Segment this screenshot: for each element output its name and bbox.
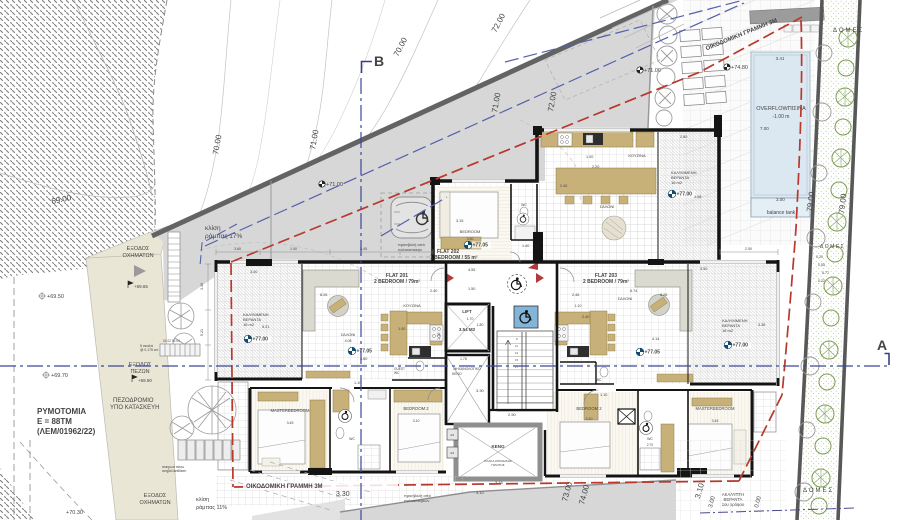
svg-text:LIFT: LIFT: [462, 309, 472, 314]
svg-text:5.21: 5.21: [200, 329, 204, 336]
svg-text:ΕΞΟΔΟΣ: ΕΞΟΔΟΣ: [127, 246, 150, 252]
svg-text:BEDROOM 2: BEDROOM 2: [403, 406, 429, 411]
svg-text:4/4: 4/4: [450, 451, 455, 455]
svg-text:3.40: 3.40: [200, 283, 204, 290]
svg-text:0.20: 0.20: [816, 255, 823, 259]
svg-text:+77.05: +77.05: [645, 350, 661, 356]
svg-text:1.00: 1.00: [586, 155, 593, 159]
svg-text:01 02 03 04: 01 02 03 04: [163, 339, 180, 343]
svg-text:1.70: 1.70: [467, 317, 474, 321]
svg-text:WC: WC: [596, 378, 602, 382]
svg-text:(ΛΕΜ/01962/22): (ΛΕΜ/01962/22): [37, 427, 96, 436]
svg-text:3.45: 3.45: [360, 247, 367, 251]
svg-text:BEDROOM 2: BEDROOM 2: [576, 406, 602, 411]
svg-text:+69.65: +69.65: [134, 284, 148, 289]
svg-text:2.40: 2.40: [582, 315, 589, 319]
svg-text:11: 11: [515, 344, 518, 348]
svg-text:OVERFLOWΠΙΣΙΝΑ: OVERFLOWΠΙΣΙΝΑ: [756, 106, 806, 112]
svg-text:WC: WC: [394, 371, 400, 375]
svg-text:2.40: 2.40: [560, 184, 567, 188]
svg-text:1.80: 1.80: [477, 323, 484, 327]
svg-text:-1.00 m: -1.00 m: [773, 114, 790, 120]
svg-text:3.54 M2: 3.54 M2: [459, 327, 476, 332]
svg-text:ΣΑΛΟΝΙ: ΣΑΛΟΝΙ: [341, 332, 356, 337]
svg-text:ΚΕΝΟ: ΚΕΝΟ: [491, 444, 505, 449]
svg-text:4/4: 4/4: [450, 433, 455, 437]
svg-text:2.40: 2.40: [430, 289, 437, 293]
svg-text:2.50: 2.50: [508, 412, 517, 417]
svg-text:2.46: 2.46: [572, 293, 579, 297]
svg-text:+77.05: +77.05: [357, 349, 373, 355]
svg-text:A: A: [877, 337, 887, 353]
svg-text:0.55: 0.55: [818, 263, 825, 267]
svg-text:3.50: 3.50: [700, 267, 707, 271]
svg-text:+77.05: +77.05: [473, 243, 489, 249]
svg-text:1.10: 1.10: [575, 304, 582, 308]
svg-text:ΚΟΥΖΙΝΑ: ΚΟΥΖΙΝΑ: [403, 303, 421, 308]
svg-text:+69.70: +69.70: [51, 373, 68, 379]
svg-text:+77.00: +77.00: [253, 337, 269, 343]
svg-text:3.10: 3.10: [413, 419, 420, 423]
svg-text:ράμπας 11%: ράμπας 11%: [196, 504, 227, 511]
svg-text:BEDROOM: BEDROOM: [460, 229, 481, 234]
svg-text:ΟΧΗΜΑΤΩΝ: ΟΧΗΜΑΤΩΝ: [139, 500, 170, 506]
svg-text:2.70: 2.70: [647, 443, 653, 447]
svg-text:κλίση: κλίση: [205, 224, 221, 232]
svg-text:0.22: 0.22: [818, 279, 825, 283]
svg-text:2 BEDROOM / 79m²: 2 BEDROOM / 79m²: [583, 279, 629, 285]
svg-text:+77.00: +77.00: [677, 192, 693, 198]
svg-text:3.45: 3.45: [712, 419, 719, 423]
svg-text:+74.80: +74.80: [731, 65, 748, 71]
svg-text:1.10: 1.10: [600, 393, 607, 397]
svg-text:+77.00: +77.00: [733, 343, 749, 349]
svg-text:3.60: 3.60: [234, 247, 241, 251]
svg-text:3.30: 3.30: [476, 388, 485, 393]
svg-text:ΕΞΟΔΟΣ: ΕΞΟΔΟΣ: [129, 362, 152, 368]
svg-text:ΕΞΟΔΟΣ: ΕΞΟΔΟΣ: [144, 493, 167, 499]
svg-text:ΣΑΛΟΝΙ: ΣΑΛΟΝΙ: [618, 296, 633, 301]
svg-text:4.14: 4.14: [652, 337, 659, 341]
svg-text:4.55: 4.55: [468, 268, 475, 272]
svg-text:WC: WC: [647, 437, 653, 441]
svg-text:1.50: 1.50: [468, 287, 475, 291]
svg-text:1.10: 1.10: [437, 333, 441, 340]
svg-text:3.30: 3.30: [336, 491, 350, 498]
svg-text:ΜΗΧΑΝΟΛΟΓΙΚΟ: ΜΗΧΑΝΟΛΟΓΙΚΟ: [453, 367, 481, 371]
svg-text:ΔΟΜΕΣ: ΔΟΜΕΣ: [820, 244, 845, 250]
svg-text:πολυκατοικην: πολυκατοικην: [398, 247, 422, 252]
svg-text:ΥΠΟ ΚΑΤΑΣΚΕΥΗ: ΥΠΟ ΚΑΤΑΣΚΕΥΗ: [110, 405, 160, 411]
svg-text:6.74: 6.74: [630, 289, 637, 293]
svg-text:5.21: 5.21: [262, 325, 269, 329]
svg-text:16 m2: 16 m2: [243, 322, 255, 327]
svg-text:0.77: 0.77: [822, 271, 829, 275]
svg-text:8.26: 8.26: [660, 293, 667, 297]
svg-text:+70.30: +70.30: [66, 510, 83, 516]
svg-text:1.78: 1.78: [460, 357, 467, 361]
svg-text:2.50: 2.50: [745, 247, 752, 251]
svg-text:8.26: 8.26: [320, 293, 327, 297]
svg-text:1 BEDROOM / 55 m²: 1 BEDROOM / 55 m²: [430, 255, 478, 261]
svg-text:MASTERBEDROOM: MASTERBEDROOM: [270, 408, 310, 413]
svg-text:3.36: 3.36: [758, 323, 765, 327]
svg-text:1.40: 1.40: [522, 244, 529, 248]
svg-text:1.00: 1.00: [398, 327, 405, 331]
svg-text:ΣΑΛΟΝΙ: ΣΑΛΟΝΙ: [600, 204, 615, 209]
svg-text:ΠΙΛΟΤΗΣ: ΠΙΛΟΤΗΣ: [491, 463, 504, 467]
svg-text:16 m2: 16 m2: [671, 180, 683, 185]
svg-text:4.08: 4.08: [345, 339, 352, 343]
svg-text:πολυαστερίων: πολυαστερίων: [404, 498, 429, 503]
svg-text:2 BEDROOM / 79m²: 2 BEDROOM / 79m²: [374, 279, 420, 285]
svg-text:ΠΕΖΟΔΡΟΜΙΟ: ΠΕΖΟΔΡΟΜΙΟ: [113, 398, 154, 404]
svg-text:ΔΟΜΕΣ: ΔΟΜΕΣ: [833, 28, 864, 34]
svg-text:3.15: 3.15: [456, 219, 463, 223]
svg-text:Ε = 88ΤΜ: Ε = 88ΤΜ: [37, 417, 72, 426]
svg-text:+69.90: +69.90: [138, 378, 152, 383]
svg-text:WC: WC: [521, 203, 527, 207]
svg-text:ΟΙΚΟΔΟΜΙΚΗ ΓΡΑΜΜΗ 3Μ: ΟΙΚΟΔΟΜΙΚΗ ΓΡΑΜΜΗ 3Μ: [246, 484, 323, 490]
svg-text:13: 13: [515, 351, 519, 355]
svg-text:18 m2: 18 m2: [722, 328, 734, 333]
svg-text:3.10: 3.10: [476, 490, 485, 495]
svg-text:WC: WC: [349, 437, 355, 441]
svg-text:1.00: 1.00: [290, 247, 297, 251]
svg-text:+71.00: +71.00: [644, 68, 661, 74]
svg-text:15: 15: [515, 358, 519, 362]
svg-text:3.10: 3.10: [586, 417, 593, 421]
svg-text:ΚΕΝΟ: ΚΕΝΟ: [452, 372, 462, 376]
svg-text:B: B: [374, 53, 384, 69]
svg-text:1.10: 1.10: [354, 381, 361, 385]
svg-text:7.00: 7.00: [760, 126, 769, 131]
svg-text:3.45: 3.45: [287, 421, 294, 425]
svg-text:3.40: 3.40: [250, 270, 257, 274]
svg-text:2.80: 2.80: [680, 135, 687, 139]
svg-text:3.41: 3.41: [776, 56, 785, 61]
svg-text:ΚΟΥΖΙΝΑ: ΚΟΥΖΙΝΑ: [628, 153, 646, 158]
svg-text:ΡΥΜΟΤΟΜΙΑ: ΡΥΜΟΤΟΜΙΑ: [37, 407, 86, 416]
svg-text:ΠΕΖΩΝ: ΠΕΖΩΝ: [130, 369, 149, 375]
svg-text:κλίση: κλίση: [196, 497, 209, 503]
svg-text:2.20: 2.20: [592, 165, 599, 169]
svg-text:6.08: 6.08: [694, 195, 701, 199]
svg-text:σκηβελ/antilisen: σκηβελ/antilisen: [162, 469, 186, 473]
svg-text:@ 0.175 cm: @ 0.175 cm: [140, 348, 159, 352]
svg-text:3.50: 3.50: [467, 237, 474, 241]
svg-text:MASTERBEDROOM: MASTERBEDROOM: [695, 406, 735, 411]
svg-text:3.00: 3.00: [776, 197, 785, 202]
svg-text:balance tank: balance tank: [767, 210, 796, 216]
svg-text:ΔΟΜΕΣ: ΔΟΜΕΣ: [803, 488, 834, 494]
svg-text:ΟΧΗΜΑΤΩΝ: ΟΧΗΜΑΤΩΝ: [122, 253, 153, 259]
svg-text:+69.50: +69.50: [47, 294, 64, 300]
